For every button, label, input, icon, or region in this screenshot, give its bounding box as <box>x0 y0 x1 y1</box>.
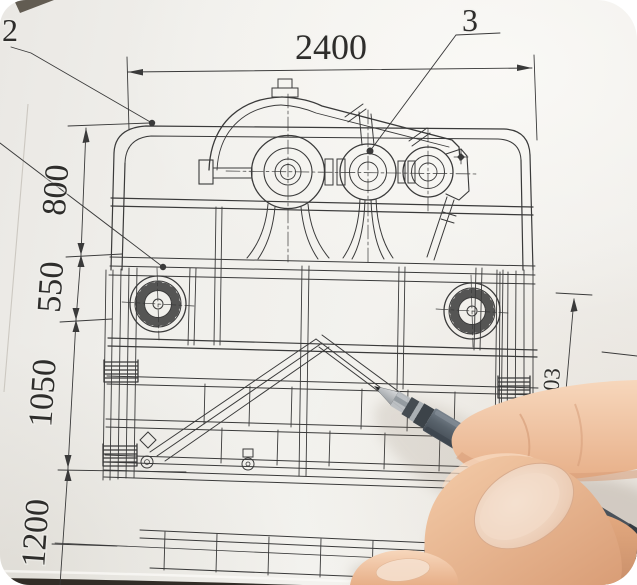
dim-1050: 1050 <box>22 358 64 428</box>
arrowhead-right <box>517 65 532 72</box>
photo-of-engineering-drawing: 2400 2 3 800 550 1050 1200 <box>0 0 637 585</box>
scene: 2400 2 3 800 550 1050 1200 <box>0 0 637 585</box>
left-wheel <box>122 268 194 340</box>
dim-550: 550 <box>31 260 71 313</box>
edge-callout-dot <box>160 264 166 270</box>
arrowhead-1403 <box>571 298 578 312</box>
dim-top-width: 2400 <box>295 27 367 67</box>
callout-3-leader <box>370 33 500 151</box>
paper-edge-line <box>4 104 28 392</box>
callout-2-label: 2 <box>2 12 18 48</box>
callout-3-label: 3 <box>462 2 478 38</box>
paper-corner-shadow <box>14 0 54 13</box>
arrowhead-left <box>128 69 143 76</box>
dim-1200: 1200 <box>15 498 57 568</box>
callout-2-leader <box>11 47 152 123</box>
callout-3-dot <box>367 148 374 155</box>
gearbox <box>199 79 478 264</box>
dim-800: 800 <box>36 163 76 216</box>
